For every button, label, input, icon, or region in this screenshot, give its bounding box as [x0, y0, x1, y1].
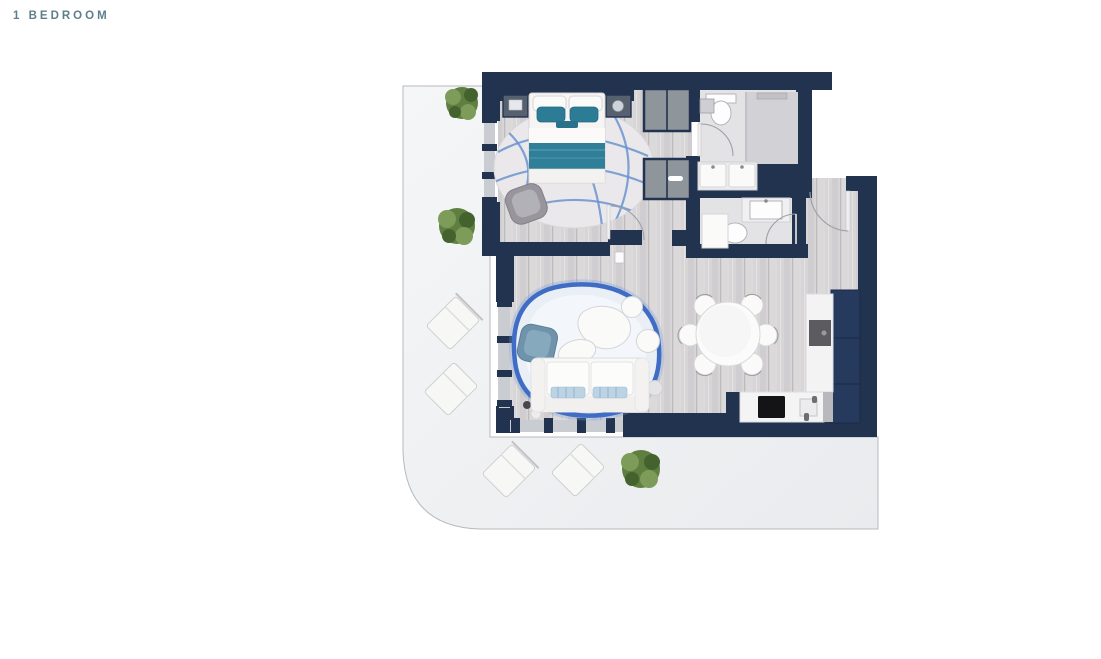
- foliage: [449, 106, 461, 118]
- pillow-teal: [570, 107, 598, 122]
- nightstand-left: [503, 95, 528, 117]
- wall-outer-east: [858, 190, 877, 437]
- bed-runner: [529, 143, 605, 169]
- living-window-west: [499, 300, 510, 408]
- foliage: [621, 453, 639, 471]
- foliage: [640, 470, 658, 488]
- window-mullion: [497, 400, 512, 407]
- wall-entry-north-right: [846, 176, 877, 191]
- bedroom-window: [484, 118, 495, 204]
- pouf: [637, 330, 660, 353]
- wardrobe-lower: [644, 159, 690, 199]
- sofa-armrest-left: [531, 358, 545, 412]
- pouf-small: [648, 381, 663, 396]
- soap-dispenser: [812, 396, 817, 403]
- double-vanity: [698, 162, 757, 190]
- potted-plant: [438, 208, 475, 245]
- wall-switch-panel: [615, 252, 624, 263]
- sofa-pillow-blue: [593, 387, 627, 398]
- kitchen-tall-units: [831, 290, 860, 423]
- window-mullion: [511, 418, 520, 433]
- cooktop: [758, 396, 785, 418]
- foliage: [438, 210, 456, 228]
- window-mullion: [497, 370, 512, 377]
- wall-kitchen-stub: [726, 392, 740, 422]
- foliage: [464, 88, 478, 102]
- pillow-body: [551, 387, 585, 398]
- sofa-backrest: [531, 396, 649, 412]
- shower-shelf: [757, 93, 787, 99]
- oven: [809, 320, 831, 346]
- window-mullion: [482, 144, 497, 151]
- window-mullion: [606, 418, 615, 433]
- window-mullion: [544, 418, 553, 433]
- shower-tray: [748, 92, 798, 164]
- nightstand-lamp: [613, 101, 624, 112]
- dining-table-shade: [699, 305, 751, 357]
- bedroom-door-leaf: [607, 205, 610, 239]
- pillow-teal: [537, 107, 565, 122]
- pillow-lumbar: [556, 121, 578, 128]
- floorplan-drawing: [0, 0, 1101, 659]
- foliage: [460, 104, 476, 120]
- foliage: [445, 89, 461, 105]
- oven-knob: [822, 331, 827, 336]
- sofa-armrest-right: [635, 358, 649, 412]
- kitchen-pillar: [823, 392, 833, 422]
- potted-plant: [621, 450, 660, 488]
- nightstand-lamp: [509, 100, 522, 110]
- faucet: [711, 165, 715, 169]
- living-room: [514, 284, 663, 419]
- bathroom-shelf: [700, 99, 714, 113]
- window-mullion: [497, 300, 512, 307]
- nightstand-right: [606, 95, 631, 117]
- guest-sink-basin: [750, 201, 782, 219]
- foliage: [442, 229, 456, 243]
- pillow-body: [593, 387, 627, 398]
- washer-cabinet: [702, 214, 728, 248]
- entry-door-leaf: [846, 191, 850, 231]
- foliage: [459, 212, 475, 228]
- wall-living-west-post: [496, 242, 514, 302]
- wardrobe-handle: [668, 176, 683, 181]
- pouf: [622, 297, 643, 318]
- wall-entry-north-left: [800, 176, 810, 191]
- foliage: [455, 227, 473, 245]
- foliage: [644, 454, 660, 470]
- wardrobe-upper: [644, 89, 690, 131]
- kitchen-tall-cabinet: [831, 290, 860, 423]
- wall-top: [482, 72, 832, 90]
- window-mullion: [482, 116, 497, 123]
- sofa: [531, 358, 649, 412]
- floor-speaker: [523, 401, 531, 409]
- foliage: [625, 472, 639, 486]
- window-mullion: [482, 197, 497, 204]
- faucet: [740, 165, 744, 169]
- wall-entry-divider: [792, 190, 806, 248]
- double-bed: [529, 93, 605, 183]
- faucet: [764, 199, 768, 203]
- shower-glass: [745, 92, 748, 164]
- bathroom-door-leaf: [698, 124, 701, 156]
- bed-foot-fold: [529, 169, 605, 183]
- faucet: [804, 413, 809, 421]
- wall-shower-east: [796, 88, 812, 166]
- sofa-pillow-blue: [551, 387, 585, 398]
- floorplan-page: 1 BEDROOM: [0, 0, 1101, 659]
- potted-plant: [445, 87, 478, 120]
- wall-hall-stub-left: [608, 230, 642, 245]
